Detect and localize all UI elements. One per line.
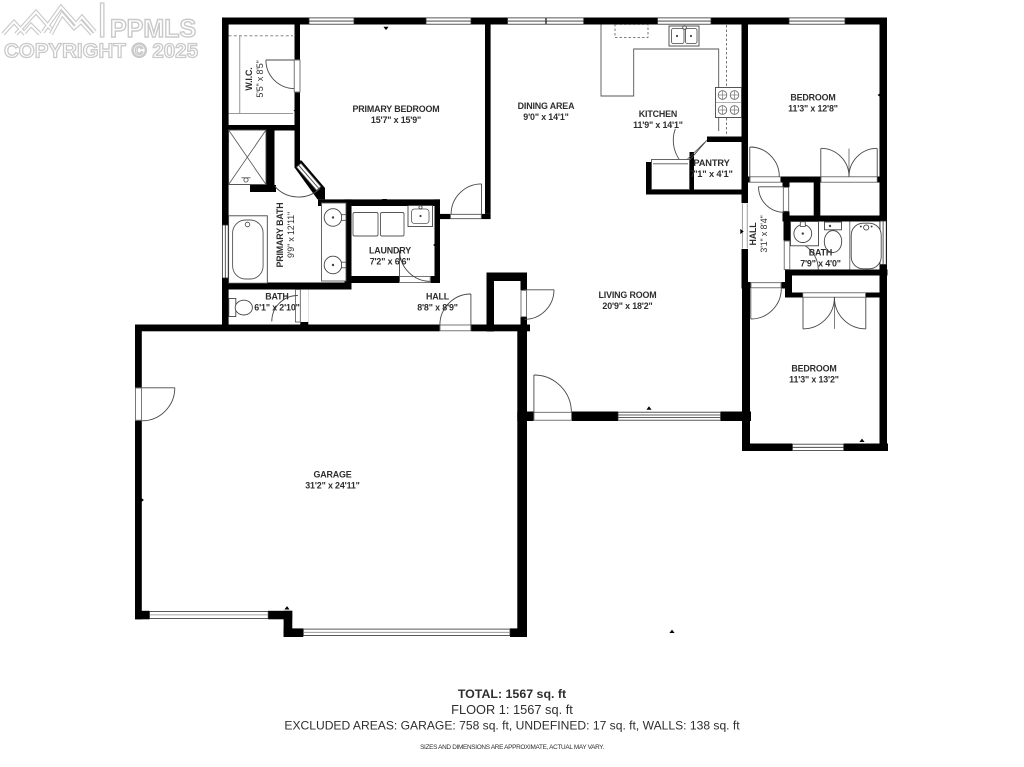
svg-text:8'8" x 8'9": 8'8" x 8'9" (417, 303, 458, 313)
svg-text:31'2" x 24'11": 31'2" x 24'11" (305, 481, 359, 491)
svg-text:7'2" x 6'6": 7'2" x 6'6" (370, 257, 411, 267)
svg-text:11'3" x 13'2": 11'3" x 13'2" (789, 374, 839, 384)
svg-text:SIZES AND DIMENSIONS ARE APPRO: SIZES AND DIMENSIONS ARE APPROXIMATE, AC… (420, 744, 604, 751)
svg-text:TOTAL: 1567 sq. ft: TOTAL: 1567 sq. ft (458, 687, 566, 701)
svg-text:BATH: BATH (265, 292, 288, 302)
svg-text:W.I.C.: W.I.C. (244, 67, 254, 90)
svg-text:15'7" x 15'9": 15'7" x 15'9" (371, 115, 421, 125)
svg-text:3'1" x 8'4": 3'1" x 8'4" (759, 215, 769, 252)
svg-text:11'3" x 12'8": 11'3" x 12'8" (788, 104, 838, 114)
svg-text:BATH: BATH (809, 247, 832, 257)
svg-text:20'9" x 18'2": 20'9" x 18'2" (602, 301, 652, 311)
svg-text:6'1" x 2'10": 6'1" x 2'10" (254, 303, 299, 313)
svg-text:HALL: HALL (426, 292, 450, 302)
svg-text:PANTRY: PANTRY (693, 158, 730, 168)
svg-text:BEDROOM: BEDROOM (790, 93, 835, 103)
svg-text:DINING AREA: DINING AREA (518, 101, 575, 111)
svg-text:7'1" x 4'1": 7'1" x 4'1" (690, 169, 733, 179)
svg-text:FLOOR 1: 1567 sq. ft: FLOOR 1: 1567 sq. ft (451, 702, 573, 717)
svg-text:EXCLUDED AREAS: GARAGE: 758 sq: EXCLUDED AREAS: GARAGE: 758 sq. ft, UNDE… (284, 719, 740, 733)
svg-text:LIVING ROOM: LIVING ROOM (598, 290, 656, 300)
svg-text:11'9" x 14'1": 11'9" x 14'1" (633, 120, 683, 130)
svg-text:9'9" x 12'11": 9'9" x 12'11" (286, 212, 296, 258)
svg-text:LAUNDRY: LAUNDRY (369, 246, 411, 256)
svg-text:PRIMARY BATH: PRIMARY BATH (275, 202, 285, 267)
svg-text:5'5" x 8'5": 5'5" x 8'5" (255, 60, 265, 97)
svg-text:PRIMARY BEDROOM: PRIMARY BEDROOM (353, 104, 440, 114)
svg-text:9'0" x 14'1": 9'0" x 14'1" (523, 112, 568, 122)
svg-text:BEDROOM: BEDROOM (791, 363, 836, 373)
svg-text:7'9" x 4'0": 7'9" x 4'0" (800, 258, 841, 268)
svg-text:KITCHEN: KITCHEN (639, 109, 677, 119)
svg-text:GARAGE: GARAGE (313, 470, 351, 480)
svg-text:COPYRIGHT © 2025: COPYRIGHT © 2025 (4, 40, 198, 63)
svg-text:HALL: HALL (748, 222, 758, 246)
